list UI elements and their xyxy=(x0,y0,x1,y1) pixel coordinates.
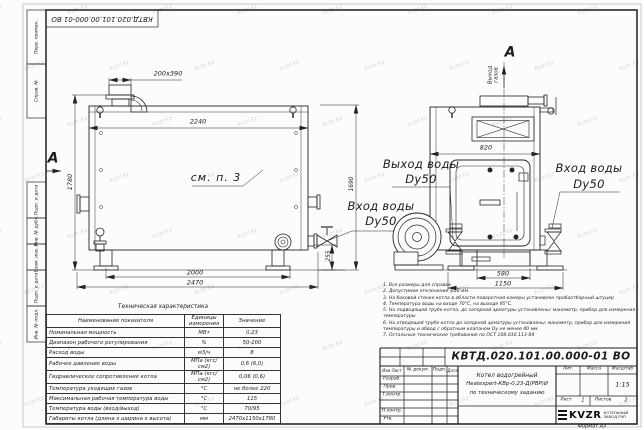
margin-label-podp-data-2: Подп. и дата xyxy=(34,273,39,304)
lit-label: Лит. xyxy=(563,368,573,373)
dim-flue-size: 200x390 xyxy=(154,71,183,78)
spec-cell-name: Номинальная мощность xyxy=(47,328,185,338)
spec-table: Наименование показателя Единицы измерени… xyxy=(46,314,281,424)
spec-cell-name: Рабочее давление воды xyxy=(47,358,185,371)
spec-cell-value: 0,06 (0,6) xyxy=(224,371,281,384)
doc-number: КВТД.020.101.00.000-01 ВО xyxy=(452,351,631,362)
product-name-line1: Котел водогрейный xyxy=(477,373,538,379)
note-item: 6. На отводящей трубе котла до запорной … xyxy=(383,321,636,334)
spec-cell-value: 0,6 (6,0) xyxy=(224,358,281,371)
product-name-line2: Heatexpert-КВр-0,23-Д(РВР)И xyxy=(466,382,548,388)
manufacturer-logo: KVZR КОТЕЛЬНЫЙ ЗАВОД РЭП xyxy=(558,407,636,423)
spec-cell-name: Габариты котла (длина х ширина х высота) xyxy=(47,414,185,424)
spec-header-value: Значение xyxy=(224,315,281,328)
spec-cell-name: Расход воды xyxy=(47,348,185,358)
spec-header-name: Наименование показателя xyxy=(47,315,185,328)
spec-cell-value: 8 xyxy=(224,348,281,358)
spec-cell-value: 50-100 xyxy=(224,338,281,348)
dim-inlet-height: 255 xyxy=(326,250,332,261)
dim-width-top-front: 2240 xyxy=(190,119,207,126)
spec-cell-name: Максимальная рабочая температура воды xyxy=(47,394,185,404)
see-note-label: см. п. 3 xyxy=(191,172,242,184)
water-inlet-side-dn: Dy50 xyxy=(573,178,605,190)
col-doc: № докум. xyxy=(407,369,429,374)
spec-cell-units: мм xyxy=(185,414,224,424)
row-checked: Пров. xyxy=(383,386,396,391)
spec-cell-units: % xyxy=(185,338,224,348)
water-outlet-dn: Dy50 xyxy=(405,173,437,185)
logo-bars-icon xyxy=(558,410,567,421)
dim-width-top-side: 820 xyxy=(480,145,492,152)
gas-outlet-label: Выход газов xyxy=(488,66,501,85)
sheets-value: 2 xyxy=(624,398,627,403)
format-note: Формат А3 xyxy=(578,424,606,429)
spec-cell-units: МПа (кгс/см2) xyxy=(185,358,224,371)
spec-cell-value: не более 220 xyxy=(224,384,281,394)
spec-cell-units: м3/ч xyxy=(185,348,224,358)
spec-cell-units: °С xyxy=(185,394,224,404)
scale-label: Масштаб xyxy=(612,368,633,373)
spec-table-row: Рабочее давление водыМПа (кгс/см2)0,6 (6… xyxy=(47,358,281,371)
logo-caption: КОТЕЛЬНЫЙ ЗАВОД РЭП xyxy=(603,411,628,420)
water-inlet-front-dn: Dy50 xyxy=(365,215,397,227)
spec-cell-units: МПа (кгс/см2) xyxy=(185,371,224,384)
spec-table-row: Габариты котла (длина х ширина х высота)… xyxy=(47,414,281,424)
logo-text: KVZR xyxy=(569,410,601,421)
dim-legs-span-front: 2000 xyxy=(187,269,204,276)
spec-cell-value: 2470х1150х1780 xyxy=(224,414,281,424)
col-sign: Подп. xyxy=(433,369,447,374)
spec-table-row: Гидравлическое сопротивление котлаМПа (к… xyxy=(47,371,281,384)
mass-label: Масса xyxy=(587,368,601,373)
logo-caption-line2: ЗАВОД РЭП xyxy=(603,414,626,419)
spec-cell-value: 70/95 xyxy=(224,404,281,414)
water-inlet-front-label: Вход воды xyxy=(348,200,415,212)
spec-cell-units: °С xyxy=(185,384,224,394)
dim-legs-span-side: 580 xyxy=(497,270,509,277)
spec-table-row: Максимальная рабочая температура воды°С1… xyxy=(47,394,281,404)
spec-cell-name: Температура воды (вход/выход) xyxy=(47,404,185,414)
notes-list: 1. Все размеры для справок2. Допустимое … xyxy=(383,283,636,340)
product-name-line3: по техническому заданию xyxy=(470,391,545,397)
scale-value: 1:15 xyxy=(615,382,630,389)
spec-table-row: Температура воды (вход/выход)°С70/95 xyxy=(47,404,281,414)
note-item: 3. На боковой стенке котла в области пов… xyxy=(383,296,636,302)
sheet-value: 1 xyxy=(581,398,584,403)
spec-cell-name: Температура уходящих газов xyxy=(47,384,185,394)
spec-table-row: Расход водым3/ч8 xyxy=(47,348,281,358)
row-approved: Утв. xyxy=(383,418,392,423)
spec-table-row: Диапазон рабочего регулирования%50-100 xyxy=(47,338,281,348)
spec-cell-value: 0,23 xyxy=(224,328,281,338)
water-outlet-label: Выход воды xyxy=(383,158,459,170)
row-developed: Разраб. xyxy=(383,378,401,383)
margin-label-podp-data-1: Подп. и дата xyxy=(34,185,39,216)
margin-label-inv-podl: Инв. № подл. xyxy=(34,308,39,339)
spec-cell-name: Гидравлическое сопротивление котла xyxy=(47,371,185,384)
spec-table-row: Номинальная мощностьМВт0,23 xyxy=(47,328,281,338)
row-tcontrol: Т.контр. xyxy=(382,394,402,399)
spec-table-row: Температура уходящих газов°Сне более 220 xyxy=(47,384,281,394)
spec-cell-units: °С xyxy=(185,404,224,414)
section-letter-side: А xyxy=(505,46,516,61)
spec-cell-units: МВт xyxy=(185,328,224,338)
margin-label-sprav-no: Справ. № xyxy=(34,80,39,102)
water-inlet-side-label: Вход воды xyxy=(556,162,623,174)
top-stamp-doc-number: КВТД.020.101.00.000-01 ВО xyxy=(51,15,152,23)
sheet-label: Лист xyxy=(560,399,571,404)
dim-height-right: 1690 xyxy=(349,177,355,192)
col-date: Дата xyxy=(447,369,457,373)
drawing-sheet: kvzr.kzkvzr.kzkvzr.kzkvzr.kzkvzr.kzkvzr.… xyxy=(0,0,644,430)
sheets-label: Листов xyxy=(595,399,612,404)
row-ncontrol: Н.контр. xyxy=(382,410,402,415)
spec-table-body: Номинальная мощностьМВт0,23Диапазон рабо… xyxy=(47,328,281,424)
spec-cell-value: 115 xyxy=(224,394,281,404)
section-letter-front: А xyxy=(48,152,59,167)
margin-label-perv-primen: Перв. примен. xyxy=(34,20,39,54)
note-item: 7. Остальные технические требования по О… xyxy=(383,333,636,339)
col-izm-list: Изм Лист xyxy=(382,369,402,373)
spec-header-units: Единицы измерения xyxy=(185,315,224,328)
spec-table-title: Техническая характеристика xyxy=(118,304,208,310)
dim-length-overall: 2470 xyxy=(187,279,204,286)
dim-height-front: 1780 xyxy=(66,174,74,191)
note-item: 5. На подводящей трубе котла, до запорно… xyxy=(383,308,636,321)
margin-label-vzam-inv: Взам. инв. № xyxy=(34,242,39,273)
spec-cell-name: Диапазон рабочего регулирования xyxy=(47,338,185,348)
